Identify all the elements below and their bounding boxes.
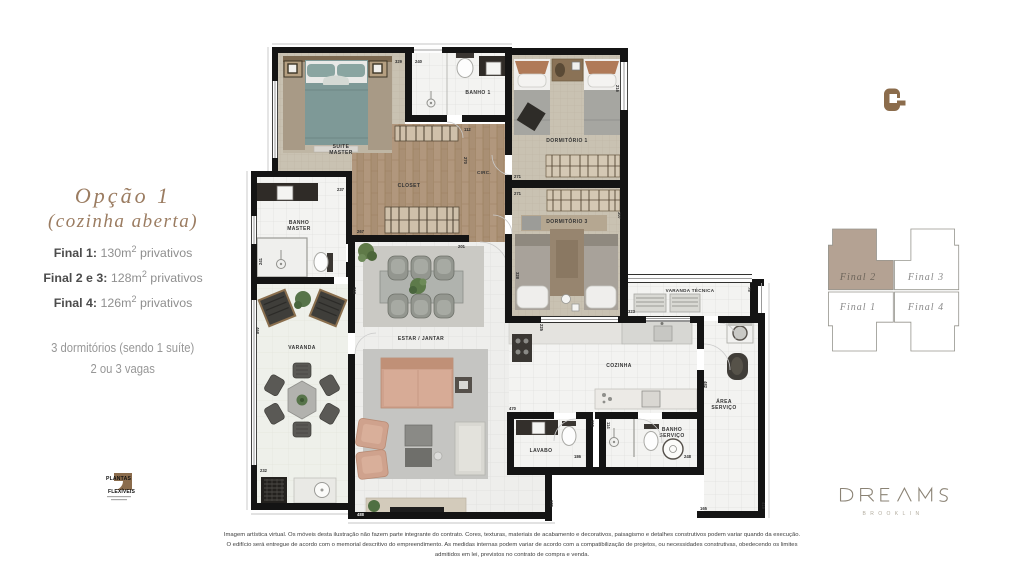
svg-text:Final 4: Final 4: [907, 302, 944, 313]
svg-text:Final 2: Final 2: [839, 272, 876, 283]
svg-text:FLEXÍVEIS: FLEXÍVEIS: [108, 487, 135, 495]
svg-text:Final 1: Final 1: [839, 302, 876, 313]
svg-text:PLANTAS: PLANTAS: [106, 476, 131, 482]
svg-text:Final 3: Final 3: [907, 272, 944, 283]
svg-text:BROOKLIN: BROOKLIN: [862, 511, 923, 517]
